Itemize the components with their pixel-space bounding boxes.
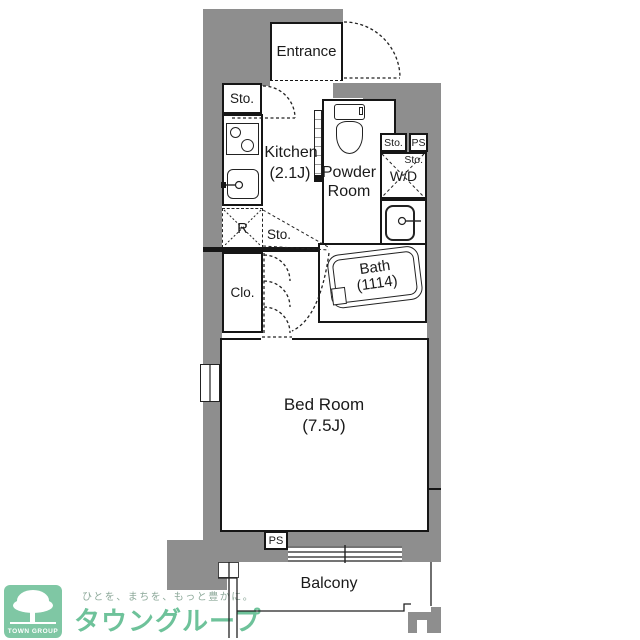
sink-tap-icon <box>221 182 226 188</box>
toilet-button-icon <box>359 107 363 115</box>
floorplan: Entrance Sto. R Clo. Sto. PS W/D Sto. <box>0 0 640 640</box>
stove-burner-icon <box>230 127 241 138</box>
balcony-window-icon <box>288 546 402 562</box>
pipe-space-top-box: PS <box>409 133 428 152</box>
storage-entrance-label: Sto. <box>230 91 254 106</box>
door-post <box>314 175 322 182</box>
wall-top <box>203 9 343 22</box>
kitchen-label: Kitchen <box>264 145 317 162</box>
door-swing-icon <box>344 22 400 78</box>
window-icon <box>200 364 220 402</box>
ps-top-label: PS <box>411 137 425 149</box>
wall-entrance-left <box>203 22 270 86</box>
washer-dryer-box: W/D Sto. <box>380 152 427 199</box>
storage-top-right-label: Sto. <box>384 137 403 149</box>
bedroom-floor <box>220 338 429 532</box>
town-group-logo: TOWN GROUP <box>4 585 62 638</box>
kitchen-sink-icon <box>227 169 259 199</box>
powder-room-label-1: Powder <box>322 165 376 182</box>
wall-line-kitchen-bottom <box>203 247 332 252</box>
balcony-wall-notch-right <box>417 620 427 633</box>
pipe-space-bottom-box: PS <box>264 531 288 550</box>
balcony-label: Balcony <box>301 576 358 593</box>
town-group-text: TOWN GROUP <box>4 628 62 635</box>
storage-entrance-box: Sto. <box>222 83 262 114</box>
entrance-room: Entrance <box>270 22 343 81</box>
powder-room-label-2: Room <box>328 184 371 201</box>
storage-mid-label: Sto. <box>267 228 291 242</box>
bedroom-label: Bed Room <box>284 396 364 414</box>
refrigerator-space: R <box>222 208 263 248</box>
kitchen-size-label: (2.1J) <box>270 166 311 183</box>
wall-right-band <box>333 83 441 98</box>
logo-brand-name: タウングループ <box>74 601 261 638</box>
entrance-label: Entrance <box>276 44 336 60</box>
closet-box: Clo. <box>222 252 263 333</box>
folding-door-icon <box>314 110 322 176</box>
ps-bottom-label: PS <box>269 535 284 547</box>
wall-right <box>427 152 441 532</box>
door-swing-icon <box>264 255 290 281</box>
stove-burner-icon <box>241 139 254 152</box>
bedroom-doorway-gap <box>261 335 292 342</box>
storage-wd-label: Sto. <box>404 155 423 166</box>
refrigerator-label: R <box>237 220 248 237</box>
balcony-wall-notch <box>218 562 239 578</box>
wd-label: W/D <box>390 168 417 184</box>
door-swing-icon <box>263 86 295 118</box>
bedroom-size-label: (7.5J) <box>302 417 345 435</box>
washbasin-icon <box>385 205 415 241</box>
storage-top-right-box: Sto. <box>380 133 407 152</box>
closet-label: Clo. <box>230 285 254 300</box>
